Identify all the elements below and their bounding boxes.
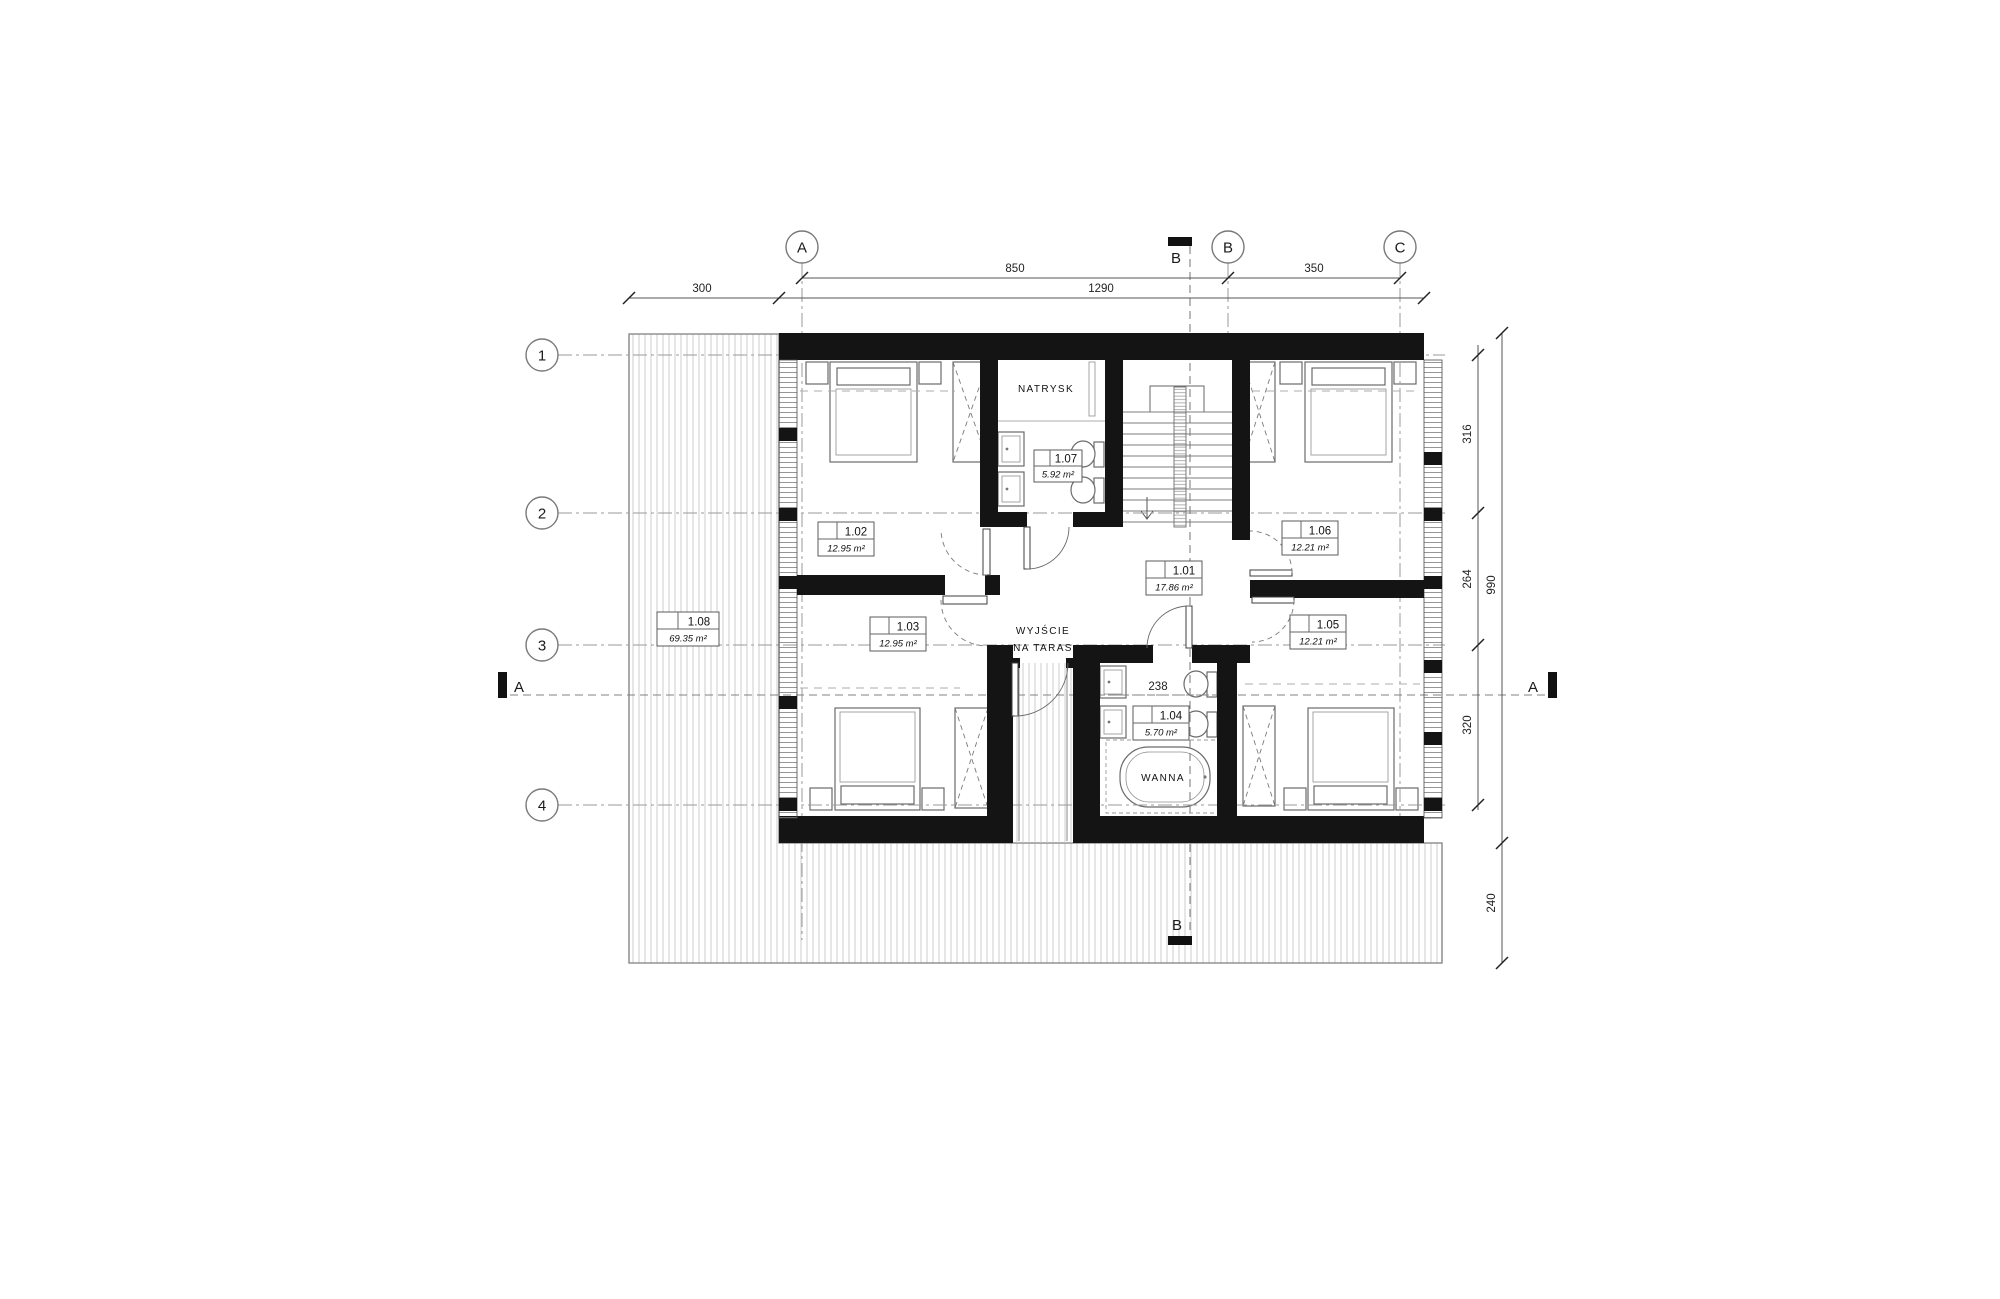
sink [998,472,1024,506]
nightstand [919,362,941,384]
bathtub-label: WANNA [1141,773,1185,784]
room-label-108: 1.08 69.35 m² [657,612,719,646]
bedroom-106-furniture [1243,362,1416,462]
staircase [1123,386,1232,527]
dim-320: 320 [1462,715,1474,734]
grid-bubble-b: B [1212,231,1244,263]
svg-text:17.86 m²: 17.86 m² [1155,583,1193,594]
svg-text:2: 2 [538,506,546,523]
door-104 [1147,606,1192,648]
dim-240: 240 [1486,893,1498,912]
nightstand [922,788,944,810]
sink [1100,666,1126,698]
svg-text:1.01: 1.01 [1173,566,1195,578]
room-label-102: 1.02 12.95 m² [818,522,874,556]
wardrobe [955,708,988,808]
room-label-106: 1.06 12.21 m² [1282,521,1338,555]
terrace-exit-label-line1: WYJŚCIE [1016,624,1070,637]
door-102 [941,529,990,575]
svg-text:B: B [1223,240,1233,257]
section-marker-b-top: B [1168,237,1192,267]
exterior-wall-south-right [1073,816,1424,843]
door-107 [1024,527,1069,569]
bedroom-105-furniture [1243,706,1418,810]
wall-corridor-west [987,645,1013,843]
wall-bath107-south-a [980,512,1027,527]
dim-850: 850 [1005,263,1024,275]
svg-text:1.03: 1.03 [897,622,919,634]
exterior-wall-south-left [779,816,1013,843]
dim-238: 238 [1148,681,1167,693]
bedroom-102-furniture [806,362,988,462]
room-label-107: 1.07 5.92 m² [1034,450,1082,482]
wall-bath104-east [1217,655,1237,818]
wall-corridor-east [1073,645,1100,843]
wall-105-106 [1250,580,1424,598]
svg-text:1.04: 1.04 [1160,711,1183,723]
svg-text:A: A [797,240,807,257]
svg-text:1.07: 1.07 [1055,454,1077,466]
dim-264: 264 [1462,569,1474,589]
grid-bubble-c: C [1384,231,1416,263]
section-marker-a-left: A [498,672,524,698]
stair-stringer [1174,387,1186,527]
bed-pillow [841,786,914,804]
svg-text:69.35 m²: 69.35 m² [669,634,707,645]
nightstand [806,362,828,384]
nightstand [1396,788,1418,810]
svg-text:B: B [1172,917,1182,934]
dimension-right: 316 264 320 990 240 [1462,327,1508,969]
door-105 [1252,597,1294,642]
nightstand [1284,788,1306,810]
room-label-101: 1.01 17.86 m² [1146,561,1202,595]
wall-bath107-west [980,360,998,527]
toilet [1184,671,1217,697]
svg-text:4: 4 [538,798,546,815]
room-label-104: 1.04 5.70 m² [1133,706,1189,740]
bed-pillow [1314,786,1387,804]
grid-bubble-2: 2 [526,497,558,529]
svg-text:A: A [514,679,524,696]
svg-text:1: 1 [538,348,546,365]
bedroom-103-furniture [810,708,988,810]
sink [998,432,1024,466]
wall-102-103-stub [985,575,1000,595]
bed-pillow [837,368,910,385]
terrace-exit-steps [1013,663,1073,843]
terrace-exit-label-line2: NA TARAS [1013,643,1073,654]
dim-1290: 1290 [1088,283,1114,295]
wardrobe [1243,706,1275,806]
room-label-103: 1.03 12.95 m² [870,617,926,651]
svg-text:5.92 m²: 5.92 m² [1042,470,1075,481]
svg-text:1.05: 1.05 [1317,620,1339,632]
svg-text:3: 3 [538,638,546,655]
steps-hatch [1013,663,1073,843]
nightstand [810,788,832,810]
svg-text:1.02: 1.02 [845,527,867,539]
wall-102-103 [797,575,945,595]
dim-300: 300 [692,283,711,295]
dim-350: 350 [1304,263,1323,275]
nightstand [1394,362,1416,384]
grid-bubble-3: 3 [526,629,558,661]
dimension-top: 850 350 300 1290 [623,263,1430,304]
sink [1100,706,1126,738]
floor-plan-page: 850 350 300 1290 316 264 320 990 240 238… [0,0,2000,1299]
shower-label: NATRYSK [1018,384,1074,395]
svg-text:C: C [1395,240,1406,257]
svg-text:12.21 m²: 12.21 m² [1299,637,1337,648]
bed-pillow [1312,368,1385,385]
svg-text:B: B [1171,250,1181,267]
grid-bubble-1: 1 [526,339,558,371]
svg-text:12.21 m²: 12.21 m² [1291,543,1329,554]
dim-990: 990 [1486,575,1498,594]
svg-text:A: A [1528,679,1538,696]
shower-glass [1089,362,1095,416]
room-label-105: 1.05 12.21 m² [1290,615,1346,649]
grid-bubble-a: A [786,231,818,263]
floor-plan-drawing: 850 350 300 1290 316 264 320 990 240 238… [0,0,2000,1299]
svg-text:5.70 m²: 5.70 m² [1145,728,1178,739]
wall-bath107-south-b [1073,512,1105,527]
door-103 [941,596,987,646]
exterior-wall-north [779,333,1424,360]
svg-text:12.95 m²: 12.95 m² [827,544,865,555]
svg-text:12.95 m²: 12.95 m² [879,639,917,650]
wall-stair-west [1105,360,1123,527]
section-marker-a-right: A [1528,672,1557,698]
svg-text:1.08: 1.08 [688,617,710,629]
nightstand [1280,362,1302,384]
dim-316: 316 [1462,424,1474,443]
wall-stair-east [1232,360,1250,540]
svg-text:1.06: 1.06 [1309,526,1331,538]
grid-bubble-4: 4 [526,789,558,821]
